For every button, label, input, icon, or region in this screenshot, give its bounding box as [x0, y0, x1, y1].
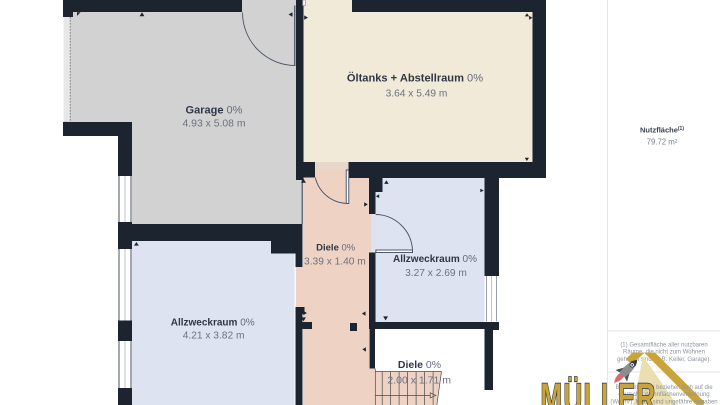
svg-text:2.00 x 1.71 m: 2.00 x 1.71 m — [387, 375, 451, 387]
svg-text:3.64 x 5.49 m: 3.64 x 5.49 m — [386, 89, 448, 100]
svg-text:Nutzfläche(1): Nutzfläche(1) — [640, 126, 684, 135]
svg-text:Allzweckraum 0%: Allzweckraum 0% — [171, 317, 255, 328]
svg-text:Diele 0%: Diele 0% — [398, 359, 441, 371]
svg-text:3.27 x 2.69 m: 3.27 x 2.69 m — [405, 268, 467, 279]
svg-text:4.21 x 3.82 m: 4.21 x 3.82 m — [183, 331, 245, 342]
svg-text:3.39 x 1.40 m: 3.39 x 1.40 m — [304, 257, 366, 268]
svg-text:Garage 0%: Garage 0% — [186, 105, 243, 117]
svg-text:(1) Gesamtfläche aller nutzbar: (1) Gesamtfläche aller nutzbaren — [620, 343, 707, 349]
svg-text:4.93 x 5.08 m: 4.93 x 5.08 m — [183, 119, 246, 130]
svg-text:Allzweckraum 0%: Allzweckraum 0% — [393, 254, 477, 265]
svg-text:79.72 m²: 79.72 m² — [647, 138, 678, 147]
svg-text:Öltanks + Abstellraum 0%: Öltanks + Abstellraum 0% — [347, 72, 483, 85]
svg-text:Diele 0%: Diele 0% — [316, 243, 356, 254]
svg-text:MÜLLER: MÜLLER — [541, 375, 657, 405]
